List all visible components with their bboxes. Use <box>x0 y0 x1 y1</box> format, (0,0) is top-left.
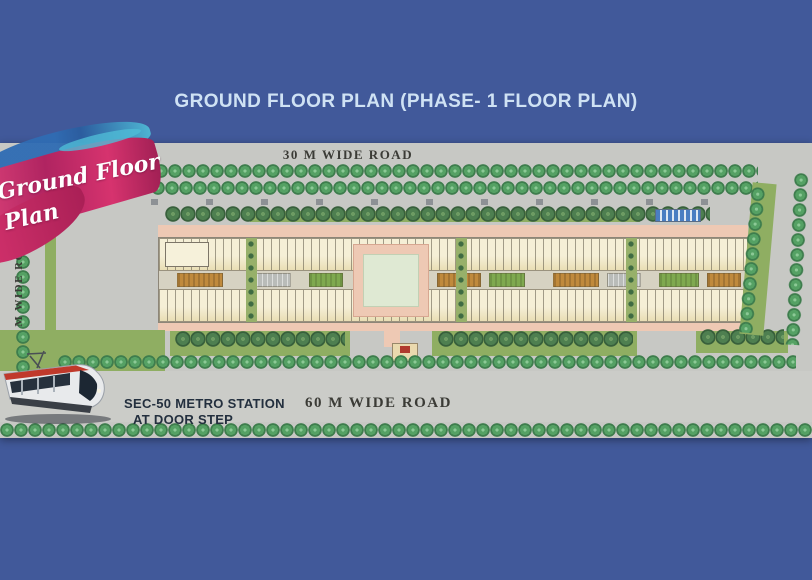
tree-row-top-2 <box>95 180 758 196</box>
central-plaza <box>353 244 429 317</box>
metro-caption-line1: SEC-50 METRO STATION <box>124 396 285 412</box>
garden-walkway <box>456 238 467 322</box>
road-bottom-label: 60 M WIDE ROAD <box>305 395 452 412</box>
promenade-bottom <box>158 323 748 331</box>
parking-canopy <box>655 209 701 222</box>
courtyard-orange <box>553 273 599 287</box>
metro-caption: SEC-50 METRO STATION AT DOOR STEP <box>124 396 285 428</box>
tree-row-inner-top <box>165 206 710 223</box>
tree-row-top-1 <box>112 163 758 179</box>
slide-background: GROUND FLOOR PLAN (PHASE- 1 FLOOR PLAN) … <box>0 0 812 580</box>
tree-row-mid <box>58 354 796 370</box>
courtyard-green <box>659 273 699 287</box>
garden-walkway <box>246 238 257 322</box>
metro-caption-line2: AT DOOR STEP <box>133 412 285 428</box>
green-strip-left <box>45 205 56 355</box>
courtyard-green <box>489 273 525 287</box>
building-complex <box>158 237 748 323</box>
central-plaza-lawn <box>363 254 419 307</box>
service-road-cars <box>70 199 730 205</box>
courtyard-green <box>309 273 343 287</box>
tree-column-right-outer <box>785 173 811 346</box>
road-left-label: M WIDE ROAD <box>13 224 25 334</box>
courtyard-orange <box>707 273 741 287</box>
courtyard-paved <box>251 273 291 287</box>
page-title: GROUND FLOOR PLAN (PHASE- 1 FLOOR PLAN) <box>0 91 812 113</box>
tree-cluster-left <box>175 331 345 348</box>
gate-roof <box>400 346 410 353</box>
road-top-label: 30 M WIDE ROAD <box>240 147 456 163</box>
tree-cluster-right <box>438 331 633 348</box>
courtyard-orange <box>177 273 223 287</box>
anchor-unit <box>165 242 209 267</box>
metro-train-icon <box>0 344 122 428</box>
garden-walkway <box>626 238 637 322</box>
